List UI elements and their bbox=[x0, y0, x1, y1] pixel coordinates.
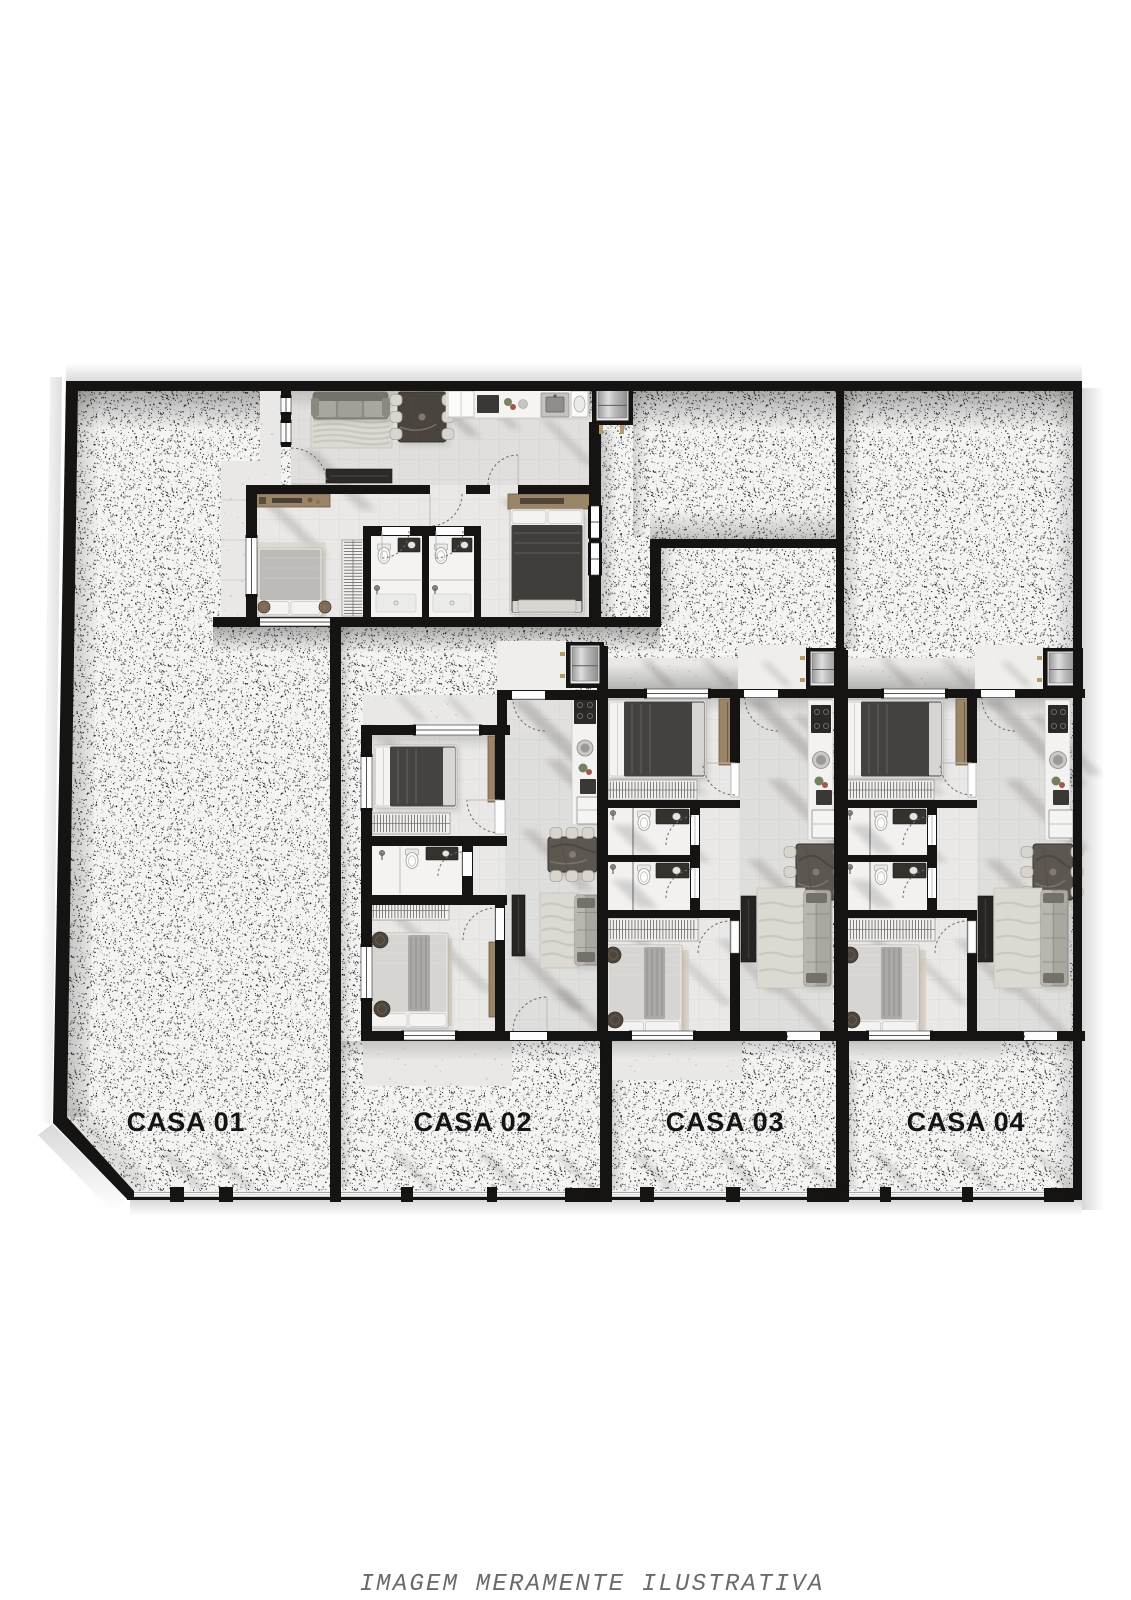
svg-text:CASA 04: CASA 04 bbox=[907, 1107, 1026, 1137]
svg-text:CASA 01: CASA 01 bbox=[127, 1107, 246, 1137]
svg-text:CASA 02: CASA 02 bbox=[414, 1107, 533, 1137]
svg-text:CASA 03: CASA 03 bbox=[666, 1107, 785, 1137]
svg-text:IMAGEM MERAMENTE ILUSTRATIVA: IMAGEM MERAMENTE ILUSTRATIVA bbox=[360, 1571, 825, 1598]
